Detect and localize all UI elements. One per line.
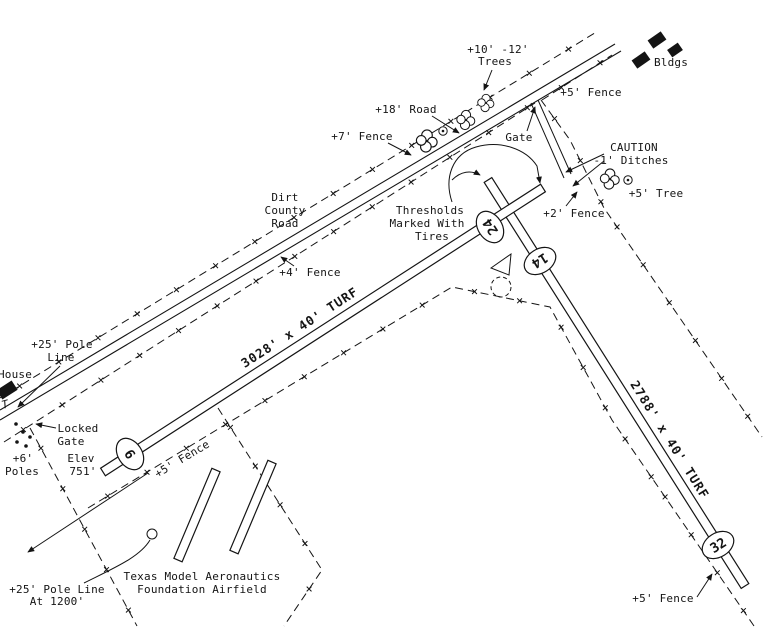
fence-x-mark [278,502,283,507]
fence-x-mark [331,229,336,234]
fence-x-mark [741,608,746,613]
label-airfield-name-1: Texas Model Aeronautics [124,570,281,583]
trees-arrow [484,70,492,90]
fence-x-mark [174,287,179,292]
fence-x-mark [581,365,586,370]
fence-x-mark [667,300,672,305]
pole-line-1200-node [147,529,157,539]
fence-x-mark [370,204,375,209]
tree-dot-icon [624,176,632,184]
fence-x-mark [96,335,101,340]
fence-x-mark [105,494,110,499]
fence-x-mark [566,47,571,52]
label-airfield-name-2: Foundation Airfield [137,583,267,596]
fence-x-mark [603,405,608,410]
fence-x-mark [307,587,312,592]
label-trees: Trees [478,55,512,68]
label-runway-6-24-size: 3028' x 40' TURF [238,284,361,371]
house-icon [0,381,18,400]
fence-x-mark [527,71,532,76]
fence-x-mark [213,263,218,268]
label-house: House [0,368,32,381]
label-thresholds-2: Marked With [389,217,464,230]
fence-x-mark [448,155,453,160]
fence-x-mark [370,167,375,172]
fence-x-mark [99,378,104,383]
label-fence5-br: +5' Fence [632,592,693,605]
label-poles6-2: Poles [5,465,39,478]
airport-sketch-page: 6 24 14 32 +10' -12' [0,0,763,627]
fence-x-mark [82,527,87,532]
label-road: Road [271,217,298,230]
fence-x-mark [254,279,259,284]
fence-x-mark [303,541,308,546]
fence-x-mark [420,303,425,308]
fence5-br-arrow [697,574,712,597]
label-county: County [265,204,306,217]
runway-14-32 [484,178,749,589]
pole-icon [24,444,28,448]
road-se-fence [4,103,535,442]
leader-arrows [18,70,712,597]
label-poles6-1: +6' [13,452,33,465]
fence-x-mark [719,376,724,381]
fence2-arrow [566,192,577,206]
tree-icon [457,110,475,129]
label-dirt: Dirt [271,191,298,204]
gate-arrow [527,107,535,131]
label-runway-14-32-size: 2788' x 40' TURF [627,378,712,502]
label-fence5-mid: +5' Fence [153,438,212,481]
fence-x-mark [135,311,140,316]
fence-x-mark [689,532,694,537]
label-elev-value: 751' [69,465,96,478]
fence-x-mark [176,328,181,333]
pole-icon [15,440,19,444]
fence-x-mark [641,262,646,267]
fence-x-mark [578,158,583,163]
fence-x-mark [60,403,65,408]
fence-x-mark [559,325,564,330]
label-gate: Gate [505,131,532,144]
fence-x-mark [252,239,257,244]
fence-x-mark [126,608,131,613]
label-locked-gate: Gate [57,435,84,448]
label-fence7: +7' Fence [331,130,392,143]
fence-lines [0,31,762,626]
label-fence2: +2' Fence [543,207,604,220]
tree-dot-icon [439,127,447,135]
fence-x-mark [17,384,22,389]
fence-x-mark [649,474,654,479]
label-tree5: +5' Tree [629,187,684,200]
windsock-icon [491,254,511,297]
tree-icon [416,130,437,152]
airport-sketch-canvas: 6 24 14 32 +10' -12' [0,0,763,627]
label-elev: Elev [67,452,94,465]
fence-x-mark [215,304,220,309]
label-bldgs: Bldgs [654,56,688,69]
pole-line-1200-arrow [28,473,148,552]
fence-x-mark [253,464,258,469]
fence-x-mark [599,199,604,204]
fence-x-mark [693,338,698,343]
thresholds-branch-arrow [452,172,480,180]
building-icon [632,51,651,68]
label-locked: Locked [58,422,99,435]
fence-x-mark [623,437,628,442]
fence-x-mark [552,116,557,121]
pole-icon [14,422,18,426]
fence-x-mark [409,143,414,148]
label-pole25-2: Line [47,351,74,364]
pole-icon [21,430,25,434]
label-pole25b-2: At 1200' [30,595,85,608]
fence-x-mark [263,398,268,403]
label-ditches: -1' Ditches [593,154,668,167]
fence-x-mark [39,446,44,451]
fence-x-mark [615,225,620,230]
fence-x-mark [302,374,307,379]
fence-x-mark [409,180,414,185]
label-thresholds-3: Tires [415,230,449,243]
label-pole25-1: +25' Pole [31,338,92,351]
fence-x-mark [331,191,336,196]
fence-x-mark [60,486,65,491]
tree-icon [600,169,619,189]
fence-x-mark [663,495,668,500]
label-caution: CAUTION [610,141,658,154]
fence-x-mark [341,350,346,355]
building-icon [648,31,667,48]
fence-x-mark [223,422,228,427]
label-fence4: +4' Fence [279,266,340,279]
fence-x-mark [449,119,454,124]
fence-x-mark [137,353,142,358]
fence-x-mark [715,570,720,575]
label-fence5-top: +5' Fence [560,86,621,99]
label-thresholds-1: Thresholds [396,204,464,217]
fence-x-mark [381,327,386,332]
pole-icon [28,435,32,439]
fence-x-mark [486,130,491,135]
labels: +10' -12' Trees Bldgs +5' Fence +18' Roa… [0,43,712,608]
label-road18: +18' Road [375,103,436,116]
locked-gate-arrow [36,424,56,428]
fence-x-mark [745,414,750,419]
dirt-county-road [0,44,621,420]
fence-x-mark [228,425,233,430]
fence-x-mark [292,254,297,259]
